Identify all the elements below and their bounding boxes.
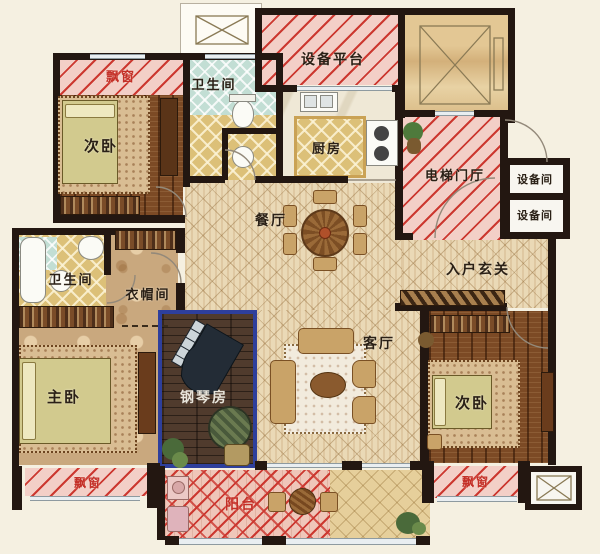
bench (427, 434, 442, 450)
wall (12, 466, 22, 510)
burner (374, 146, 389, 161)
cloak-dashed-line (122, 325, 168, 327)
window (297, 86, 392, 91)
wall (276, 53, 283, 183)
wall (283, 176, 348, 183)
wardrobe-bedroom-br (430, 315, 510, 333)
room-label-equipment-room-lower: 设备间 (517, 211, 553, 222)
window (205, 54, 260, 59)
room-label-bay-window-bl: 飘窗 (74, 477, 102, 489)
wall (500, 193, 570, 200)
room-label-elevator-lobby: 电梯门厅 (425, 169, 485, 182)
elevator-door (435, 111, 474, 116)
bathtub (20, 237, 46, 303)
wall (255, 8, 262, 92)
burner (374, 126, 389, 141)
balcony-door (267, 463, 342, 468)
wall (53, 215, 185, 223)
wall (104, 235, 111, 275)
side-table (224, 444, 250, 466)
window (437, 496, 517, 502)
room-label-bedroom-br: 次卧 (455, 396, 489, 411)
balcony-door (362, 463, 410, 468)
wall (500, 165, 510, 239)
room-label-bedroom-tl: 次卧 (84, 139, 118, 154)
wall (183, 176, 225, 183)
room-label-master-bedroom: 主卧 (47, 390, 81, 405)
wardrobe-cloak-top (115, 230, 176, 250)
pillow (22, 362, 36, 440)
dining-chair (283, 233, 297, 255)
balcony-cabinet (167, 506, 189, 532)
toilet (232, 100, 254, 128)
br-dresser (541, 372, 554, 432)
balcony-chair (320, 492, 338, 512)
window (90, 54, 145, 59)
wardrobe-bedroom-tl (60, 196, 140, 215)
coffee-table (310, 372, 346, 398)
toilet-tank (229, 94, 256, 102)
sofa (298, 328, 354, 354)
wall (395, 233, 413, 240)
dining-chair (353, 233, 367, 255)
room-label-living-room: 客厅 (363, 336, 395, 350)
plant (407, 138, 421, 154)
shaft-box-top (180, 3, 262, 55)
wall (518, 461, 530, 503)
toilet (78, 236, 104, 260)
shaft-box-br (531, 472, 576, 504)
balcony-table (289, 488, 316, 515)
room-label-bathroom-left: 卫生间 (48, 273, 93, 286)
dining-table-center (319, 227, 331, 239)
wall (422, 461, 434, 503)
room-label-foyer: 入户玄关 (446, 262, 510, 276)
balcony-chair (268, 492, 286, 512)
dining-chair (313, 257, 337, 271)
wall (222, 128, 280, 134)
room-label-equipment-platform: 设备平台 (301, 52, 365, 66)
floor-plan: 飘窗 次卧 卫生间 设备平台 厨房 电梯门厅 设备间 设备间 餐厅 入户玄关 卫… (0, 0, 600, 554)
dining-chair (313, 190, 337, 204)
wall (405, 110, 435, 117)
wall (12, 228, 19, 473)
pillow (65, 104, 115, 118)
window (30, 496, 140, 501)
plant (412, 522, 426, 535)
pillow (434, 378, 446, 426)
kitchen-sink-bowl (304, 95, 317, 108)
wall (255, 8, 405, 15)
master-dresser (138, 352, 156, 434)
wall (500, 232, 570, 239)
room-label-equipment-room-upper: 设备间 (517, 175, 553, 186)
wall (222, 134, 228, 180)
room-label-kitchen: 厨房 (312, 142, 342, 155)
room-label-bathroom-top: 卫生间 (191, 78, 236, 91)
room-label-bay-window-tl: 飘窗 (106, 70, 136, 83)
wall (255, 85, 297, 92)
room-label-dining: 餐厅 (255, 213, 287, 227)
balcony-rail (165, 538, 430, 545)
bedroom-tl-cabinet (160, 98, 178, 176)
room-label-piano-room: 钢琴房 (180, 390, 228, 404)
wall (262, 536, 286, 545)
wall (176, 228, 185, 253)
wall (405, 8, 515, 15)
wall (255, 461, 267, 470)
wall (508, 8, 515, 123)
kitchen-sink-bowl (320, 95, 333, 108)
room-label-cloakroom: 衣帽间 (125, 288, 170, 301)
wall (342, 461, 362, 470)
wall (255, 176, 283, 183)
room-label-balcony: 阳台 (225, 497, 257, 511)
wardrobe-cloak-bottom (19, 306, 114, 328)
plant (418, 332, 434, 348)
wall (157, 466, 165, 540)
wall (176, 283, 185, 310)
armchair (352, 396, 376, 424)
wall (183, 53, 190, 187)
wall (416, 536, 430, 545)
wall (500, 158, 570, 165)
elevator-shaft (405, 15, 508, 118)
armchair (352, 360, 376, 388)
plant (172, 452, 188, 468)
sink (232, 146, 254, 168)
wall (165, 536, 179, 545)
room-label-bay-window-br: 飘窗 (462, 476, 490, 488)
dining-chair (353, 205, 367, 227)
bathroom-top-floor-b (190, 115, 276, 180)
washing-machine-door (172, 481, 185, 494)
foyer-closet (400, 290, 505, 306)
wall (410, 461, 422, 470)
sofa (270, 360, 296, 424)
